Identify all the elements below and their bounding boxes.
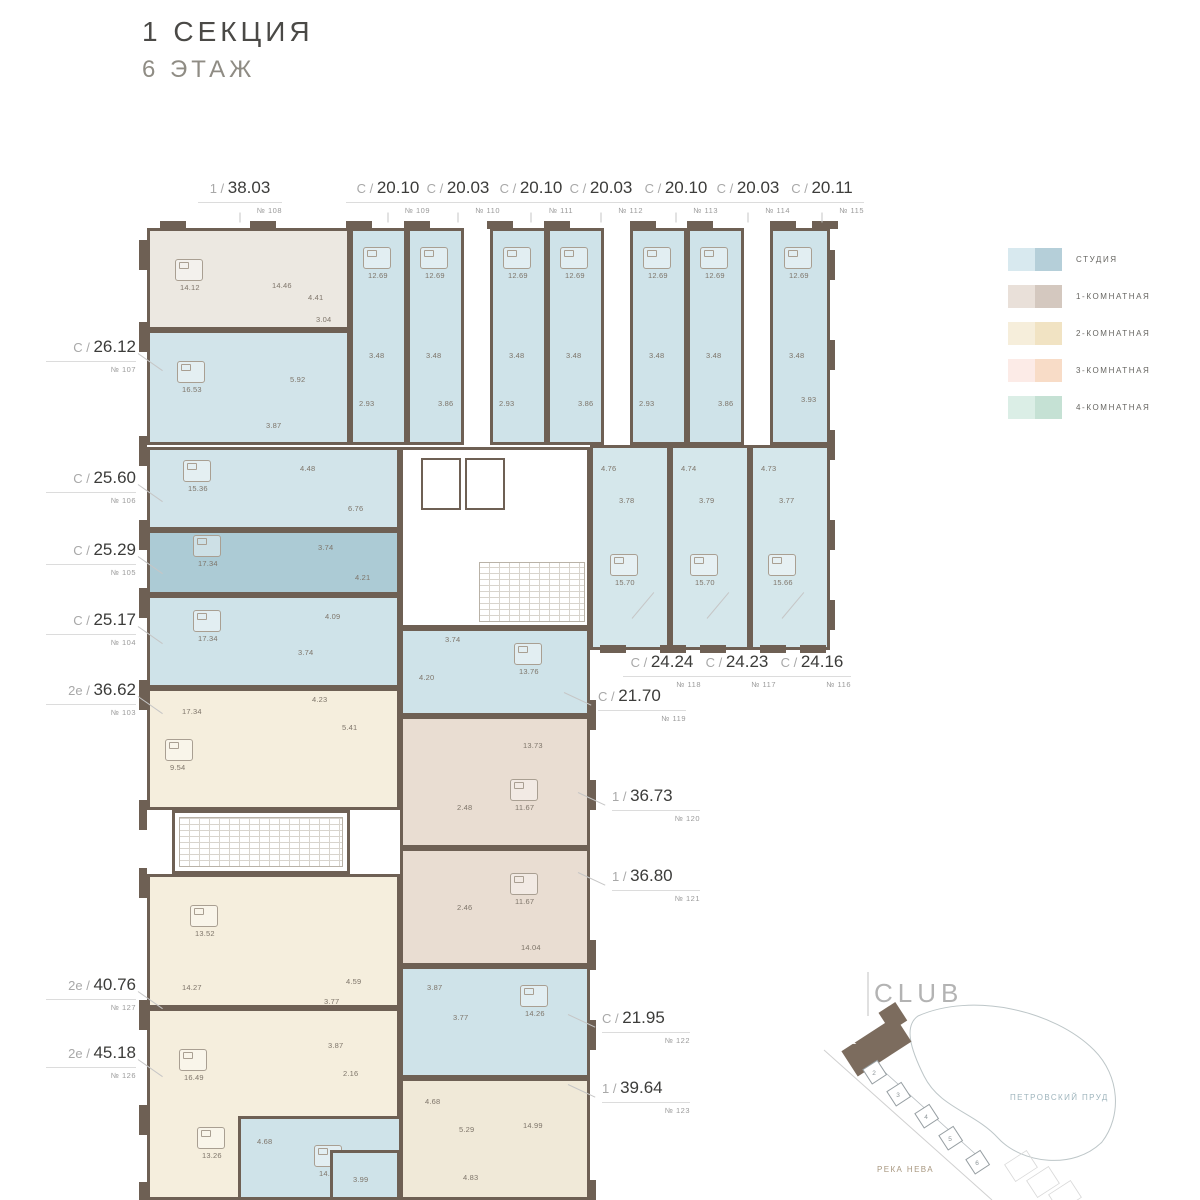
room-area-label: 3.74 [298, 648, 313, 657]
unit-label-117[interactable]: С / 24.23№ 117 [698, 652, 776, 689]
elevator-shaft [421, 458, 461, 510]
facade-pillar [770, 221, 796, 229]
legend-row: 4-КОМНАТНАЯ [1008, 396, 1150, 419]
room-area-label: 3.48 [369, 351, 384, 360]
legend-row: СТУДИЯ [1008, 248, 1150, 271]
room-area-label: 15.70 [695, 578, 715, 587]
label-underline [698, 676, 776, 677]
label-underline [602, 1032, 690, 1033]
unit-type-prefix: С / [645, 181, 665, 196]
unit-type-prefix: С / [602, 1011, 622, 1026]
legend-swatch-light [1008, 359, 1035, 382]
room-area-label: 3.48 [509, 351, 524, 360]
facade-pillar [139, 1000, 147, 1030]
room-area-label: 15.70 [615, 578, 635, 587]
room-area-label: 3.48 [566, 351, 581, 360]
unit-label-121[interactable]: 1 / 36.80№ 121 [612, 866, 700, 903]
label-underline [198, 202, 282, 203]
unit-label-116[interactable]: С / 24.16№ 116 [773, 652, 851, 689]
unit-type-prefix: С / [357, 181, 377, 196]
unit-label-115[interactable]: С / 20.11№ 115 [780, 178, 864, 215]
unit-type-prefix: 1 / [612, 869, 630, 884]
room-area-label: 3.86 [438, 399, 453, 408]
apartment-block-127[interactable]: 13.5214.274.593.77 [147, 874, 400, 1008]
room-area-label: 13.73 [523, 741, 543, 750]
map-other-building [1005, 1151, 1082, 1200]
room-area-label: 4.68 [257, 1137, 272, 1146]
bed-icon [420, 247, 448, 269]
apartment-block-110[interactable]: 12.693.483.86 [407, 228, 464, 445]
room-area-label: 5.92 [290, 375, 305, 384]
label-underline [780, 202, 864, 203]
unit-number: № 126 [46, 1071, 136, 1080]
bed-icon [643, 247, 671, 269]
unit-number: № 122 [602, 1036, 690, 1045]
unit-label-104[interactable]: С / 25.17№ 104 [46, 610, 136, 647]
apartment-block-115[interactable]: 12.693.483.93 [770, 228, 830, 445]
label-underline [416, 202, 500, 203]
bed-icon [177, 361, 205, 383]
unit-label-114[interactable]: С / 20.03№ 114 [706, 178, 790, 215]
bed-icon [363, 247, 391, 269]
unit-type-prefix: 2е / [68, 1046, 93, 1061]
unit-type-prefix: С / [706, 655, 726, 670]
unit-label-119[interactable]: С / 21.70№ 119 [598, 686, 686, 723]
room-area-label: 6.76 [348, 504, 363, 513]
bed-icon [520, 985, 548, 1007]
unit-type-prefix: 1 / [612, 789, 630, 804]
legend-swatch-dark [1035, 359, 1062, 382]
facade-pillar [588, 1180, 596, 1200]
room-area-label: 3.86 [578, 399, 593, 408]
room-area-label: 2.93 [499, 399, 514, 408]
apartment-block-104[interactable]: 17.344.093.74 [147, 595, 400, 688]
unit-label-110[interactable]: С / 20.03№ 110 [416, 178, 500, 215]
room-area-label: 14.12 [180, 283, 200, 292]
leader-line [458, 213, 459, 223]
room-area-label: 4.83 [463, 1173, 478, 1182]
unit-area-value: 20.03 [737, 178, 780, 197]
apartment-block-118[interactable]: 4.763.7815.70 [590, 445, 670, 650]
svg-text:2: 2 [872, 1070, 876, 1077]
room-area-label: 12.69 [425, 271, 445, 280]
room-area-label: 2.46 [457, 903, 472, 912]
bed-icon [197, 1127, 225, 1149]
unit-number: № 121 [612, 894, 700, 903]
room-area-label: 4.76 [601, 464, 616, 473]
bed-icon [560, 247, 588, 269]
unit-label-106[interactable]: С / 25.60№ 106 [46, 468, 136, 505]
room-area-label: 14.99 [523, 1121, 543, 1130]
unit-type-prefix: С / [427, 181, 447, 196]
facade-pillar [630, 221, 656, 229]
bed-icon [690, 554, 718, 576]
unit-area-value: 20.03 [590, 178, 633, 197]
map-club-label: CLUB [874, 978, 963, 1008]
unit-area-value: 36.73 [630, 786, 673, 805]
map-river-label: РЕКА НЕВА [877, 1165, 934, 1174]
room-area-label: 3.87 [266, 421, 281, 430]
room-area-label: 3.86 [718, 399, 733, 408]
floor-title: 6 ЭТАЖ [142, 56, 255, 84]
room-area-label: 3.77 [779, 496, 794, 505]
facade-pillar [139, 322, 147, 352]
svg-text:5: 5 [948, 1136, 952, 1143]
leader-line [388, 213, 389, 223]
facade-pillar [827, 430, 835, 460]
unit-number: № 105 [46, 568, 136, 577]
map-section-numbers: 2 3 4 5 6 [872, 1070, 979, 1167]
unit-label-126[interactable]: 2е / 45.18№ 126 [46, 1043, 136, 1080]
bed-icon [510, 779, 538, 801]
unit-type-prefix: С / [781, 655, 801, 670]
facade-pillar [139, 240, 147, 270]
apartment-block-105[interactable]: 17.343.744.21 [147, 530, 400, 595]
label-underline [612, 890, 700, 891]
apartment-block-112[interactable]: 12.693.483.86 [547, 228, 604, 445]
room-area-label: 3.87 [328, 1041, 343, 1050]
unit-area-value: 45.18 [93, 1043, 136, 1062]
label-underline [46, 704, 136, 705]
unit-area-value: 20.11 [811, 178, 852, 197]
unit-area-value: 21.70 [618, 686, 661, 705]
facade-pillar [827, 600, 835, 630]
legend-swatch-light [1008, 396, 1035, 419]
room-area-label: 3.48 [789, 351, 804, 360]
unit-number: № 119 [598, 714, 686, 723]
room-area-label: 11.67 [515, 897, 534, 906]
unit-label-108[interactable]: 1 / 38.03№ 108 [198, 178, 282, 215]
stairs-hatch [479, 562, 585, 622]
unit-number: № 103 [46, 708, 136, 717]
legend-label: СТУДИЯ [1076, 255, 1118, 264]
room-area-label: 3.48 [426, 351, 441, 360]
bed-icon [510, 873, 538, 895]
room-area-label: 2.16 [343, 1069, 358, 1078]
room-area-label: 15.36 [188, 484, 208, 493]
room-area-label: 13.76 [519, 667, 539, 676]
room-area-label: 3.87 [427, 983, 442, 992]
legend-swatch-dark [1035, 248, 1062, 271]
room-area-label: 12.69 [368, 271, 388, 280]
facade-pillar [346, 221, 372, 229]
room-area-label: 17.34 [182, 707, 202, 716]
room-area-label: 4.68 [425, 1097, 440, 1106]
legend: СТУДИЯ1-КОМНАТНАЯ2-КОМНАТНАЯ3-КОМНАТНАЯ4… [1008, 248, 1150, 433]
bed-icon [768, 554, 796, 576]
facade-pillar [588, 780, 596, 810]
map-pond-label: ПЕТРОВСКИЙ ПРУД [1010, 1093, 1109, 1102]
room-area-label: 12.69 [789, 271, 809, 280]
facade-pillar [250, 221, 276, 229]
bed-icon [514, 643, 542, 665]
unit-area-value: 26.12 [93, 337, 136, 356]
label-underline [46, 361, 136, 362]
legend-label: 3-КОМНАТНАЯ [1076, 366, 1150, 375]
legend-swatch-dark [1035, 285, 1062, 308]
room-area-label: 4.20 [419, 673, 434, 682]
room-area-label: 3.48 [649, 351, 664, 360]
unit-number: № 107 [46, 365, 136, 374]
bed-icon [165, 739, 193, 761]
room-area-label: 3.99 [353, 1175, 368, 1184]
room-area-label: 14.04 [521, 943, 541, 952]
room-area-label: 13.52 [195, 929, 215, 938]
legend-swatch-light [1008, 285, 1035, 308]
room-area-label: 2.93 [639, 399, 654, 408]
legend-swatch-dark [1035, 322, 1062, 345]
room-area-label: 4.48 [300, 464, 315, 473]
unit-area-value: 25.17 [93, 610, 136, 629]
room-area-label: 3.77 [453, 1013, 468, 1022]
unit-number: № 104 [46, 638, 136, 647]
facade-pillar [139, 800, 147, 830]
unit-type-prefix: С / [570, 181, 590, 196]
room-area-label: 3.78 [619, 496, 634, 505]
unit-area-value: 25.60 [93, 468, 136, 487]
floorplan-page: 1 СЕКЦИЯ 6 ЭТАЖ СТУДИЯ1-КОМНАТНАЯ2-КОМНА… [0, 0, 1200, 1200]
bed-icon [190, 905, 218, 927]
facade-pillar [588, 940, 596, 970]
label-underline [612, 810, 700, 811]
room-area-label: 4.59 [346, 977, 361, 986]
site-map: CLUB ПЕТРОВСКИЙ ПРУД РЕКА НЕВА 1 2 3 4 5… [822, 958, 1200, 1200]
legend-row: 1-КОМНАТНАЯ [1008, 285, 1150, 308]
unit-type-prefix: С / [73, 543, 93, 558]
unit-area-value: 40.76 [93, 975, 136, 994]
legend-swatch-dark [1035, 396, 1062, 419]
unit-type-prefix: 1 / [210, 181, 228, 196]
legend-swatch-light [1008, 322, 1035, 345]
room-area-label: 13.26 [202, 1151, 222, 1160]
label-underline [46, 564, 136, 565]
facade-pillar [827, 520, 835, 550]
unit-type-prefix: 2е / [68, 683, 93, 698]
leader-line [601, 213, 602, 223]
unit-area-value: 25.29 [93, 540, 136, 559]
map-section-1-number: 1 [852, 1037, 857, 1046]
legend-label: 2-КОМНАТНАЯ [1076, 329, 1150, 338]
apartment-block-109[interactable]: 12.693.482.93 [350, 228, 407, 445]
leader-line [676, 213, 677, 223]
apartment-block-stair2 [172, 810, 350, 874]
unit-number: № 117 [698, 680, 776, 689]
section-title: 1 СЕКЦИЯ [142, 16, 314, 48]
unit-label-120[interactable]: 1 / 36.73№ 120 [612, 786, 700, 823]
room-area-label: 14.46 [272, 281, 292, 290]
apartment-block-108[interactable]: 14.1214.464.413.04 [147, 228, 350, 330]
unit-area-value: 24.16 [801, 652, 844, 671]
svg-text:4: 4 [924, 1114, 928, 1121]
facade-pillar [487, 221, 513, 229]
room-area-label: 4.23 [312, 695, 327, 704]
label-underline [602, 1102, 690, 1103]
bed-icon [193, 610, 221, 632]
room-area-label: 3.77 [324, 997, 339, 1006]
apartment-block-114[interactable]: 12.693.483.86 [687, 228, 744, 445]
legend-label: 1-КОМНАТНАЯ [1076, 292, 1150, 301]
room-area-label: 3.93 [801, 395, 816, 404]
bed-icon [784, 247, 812, 269]
facade-pillar [544, 221, 570, 229]
unit-type-prefix: С / [717, 181, 737, 196]
facade-pillar [139, 520, 147, 550]
room-area-label: 4.41 [308, 293, 323, 302]
label-underline [559, 202, 643, 203]
unit-type-prefix: С / [73, 471, 93, 486]
map-shoreline [824, 1050, 992, 1200]
legend-label: 4-КОМНАТНАЯ [1076, 403, 1150, 412]
facade-pillar [404, 221, 430, 229]
unit-number: № 120 [612, 814, 700, 823]
room-area-label: 16.53 [182, 385, 202, 394]
facade-pillar [812, 221, 838, 229]
unit-type-prefix: С / [73, 340, 93, 355]
unit-type-prefix: 2е / [68, 978, 93, 993]
facade-pillar [139, 680, 147, 710]
unit-area-value: 39.64 [620, 1078, 663, 1097]
unit-area-value: 20.10 [520, 178, 563, 197]
room-area-label: 17.34 [198, 634, 218, 643]
unit-area-value: 24.23 [726, 652, 769, 671]
bed-icon [700, 247, 728, 269]
room-area-label: 5.29 [459, 1125, 474, 1134]
room-area-label: 3.79 [699, 496, 714, 505]
unit-area-value: 20.10 [665, 178, 708, 197]
unit-type-prefix: С / [791, 181, 811, 196]
svg-text:6: 6 [975, 1160, 979, 1167]
apartment-block-116[interactable]: 4.733.7715.66 [750, 445, 830, 650]
unit-label-103[interactable]: 2е / 36.62№ 103 [46, 680, 136, 717]
unit-type-prefix: С / [631, 655, 651, 670]
apartment-block-119[interactable]: 3.744.2013.76 [400, 628, 590, 716]
apartment-block-121[interactable]: 2.4611.6714.04 [400, 848, 590, 966]
unit-type-prefix: 1 / [602, 1081, 620, 1096]
unit-label-122[interactable]: С / 21.95№ 122 [602, 1008, 690, 1045]
bed-icon [175, 259, 203, 281]
room-area-label: 15.66 [773, 578, 793, 587]
room-area-label: 17.34 [198, 559, 218, 568]
label-underline [46, 492, 136, 493]
room-area-label: 3.74 [318, 543, 333, 552]
unit-area-value: 38.03 [228, 178, 271, 197]
bed-icon [503, 247, 531, 269]
apartment-block-111[interactable]: 12.693.482.93 [490, 228, 547, 445]
label-underline [706, 202, 790, 203]
unit-label-112[interactable]: С / 20.03№ 112 [559, 178, 643, 215]
unit-label-105[interactable]: С / 25.29№ 105 [46, 540, 136, 577]
elevator-shaft [465, 458, 505, 510]
unit-label-123[interactable]: 1 / 39.64№ 123 [602, 1078, 690, 1115]
bed-icon [183, 460, 211, 482]
bed-icon [193, 535, 221, 557]
room-area-label: 14.27 [182, 983, 202, 992]
room-area-label: 4.21 [355, 573, 370, 582]
svg-text:3: 3 [896, 1092, 900, 1099]
facade-pillar [139, 1182, 147, 1200]
room-area-label: 4.73 [761, 464, 776, 473]
legend-row: 2-КОМНАТНАЯ [1008, 322, 1150, 345]
unit-area-value: 21.95 [622, 1008, 665, 1027]
apartment-block-113[interactable]: 12.693.482.93 [630, 228, 687, 445]
unit-type-prefix: С / [598, 689, 618, 704]
facade-pillar [160, 221, 186, 229]
unit-type-prefix: С / [500, 181, 520, 196]
facade-pillar [139, 868, 147, 898]
unit-area-value: 36.62 [93, 680, 136, 699]
unit-number: № 123 [602, 1106, 690, 1115]
unit-area-value: 36.80 [630, 866, 673, 885]
room-area-label: 14.26 [525, 1009, 545, 1018]
room-area-label: 3.04 [316, 315, 331, 324]
legend-row: 3-КОМНАТНАЯ [1008, 359, 1150, 382]
label-underline [623, 676, 701, 677]
room-area-label: 3.48 [706, 351, 721, 360]
unit-number: № 127 [46, 1003, 136, 1012]
leader-line [748, 213, 749, 223]
facade-pillar [687, 221, 713, 229]
room-area-label: 4.74 [681, 464, 696, 473]
legend-swatch-light [1008, 248, 1035, 271]
unit-number: № 116 [773, 680, 851, 689]
room-area-label: 3.74 [445, 635, 460, 644]
room-area-label: 12.69 [508, 271, 528, 280]
unit-label-127[interactable]: 2е / 40.76№ 127 [46, 975, 136, 1012]
unit-type-prefix: С / [73, 613, 93, 628]
apartment-block-117[interactable]: 4.743.7915.70 [670, 445, 750, 650]
room-area-label: 16.49 [184, 1073, 204, 1082]
room-area-label: 12.69 [648, 271, 668, 280]
bed-icon [610, 554, 638, 576]
stairs-hatch [179, 817, 343, 867]
room-area-label: 2.48 [457, 803, 472, 812]
label-underline [773, 676, 851, 677]
unit-area-value: 24.24 [651, 652, 694, 671]
facade-pillar [139, 588, 147, 618]
apartment-block-125[interactable]: 3.99 [330, 1150, 400, 1200]
label-underline [46, 1067, 136, 1068]
apartment-block-106[interactable]: 15.364.486.76 [147, 447, 400, 530]
apartment-block-107[interactable]: 16.535.923.87 [147, 330, 350, 445]
room-area-label: 11.67 [515, 803, 534, 812]
bed-icon [179, 1049, 207, 1071]
apartment-block-123[interactable]: 4.685.2914.994.83 [400, 1078, 590, 1200]
label-underline [46, 999, 136, 1000]
unit-label-118[interactable]: С / 24.24№ 118 [623, 652, 701, 689]
unit-area-value: 20.03 [447, 178, 490, 197]
facade-pillar [827, 340, 835, 370]
facade-pillar [139, 436, 147, 466]
apartment-block-120[interactable]: 13.732.4811.67 [400, 716, 590, 848]
apartment-block-core [400, 447, 590, 628]
room-area-label: 12.69 [565, 271, 585, 280]
unit-area-value: 20.10 [377, 178, 420, 197]
leader-line [240, 213, 241, 223]
unit-number: № 106 [46, 496, 136, 505]
apartment-block-122[interactable]: 3.873.7714.26 [400, 966, 590, 1078]
room-area-label: 2.93 [359, 399, 374, 408]
apartment-block-103[interactable]: 17.344.235.419.54 [147, 688, 400, 810]
label-underline [598, 710, 686, 711]
unit-label-107[interactable]: С / 26.12№ 107 [46, 337, 136, 374]
facade-pillar [827, 250, 835, 280]
room-area-label: 5.41 [342, 723, 357, 732]
room-area-label: 9.54 [170, 763, 185, 772]
room-area-label: 12.69 [705, 271, 725, 280]
label-underline [46, 634, 136, 635]
room-area-label: 4.09 [325, 612, 340, 621]
leader-line [531, 213, 532, 223]
